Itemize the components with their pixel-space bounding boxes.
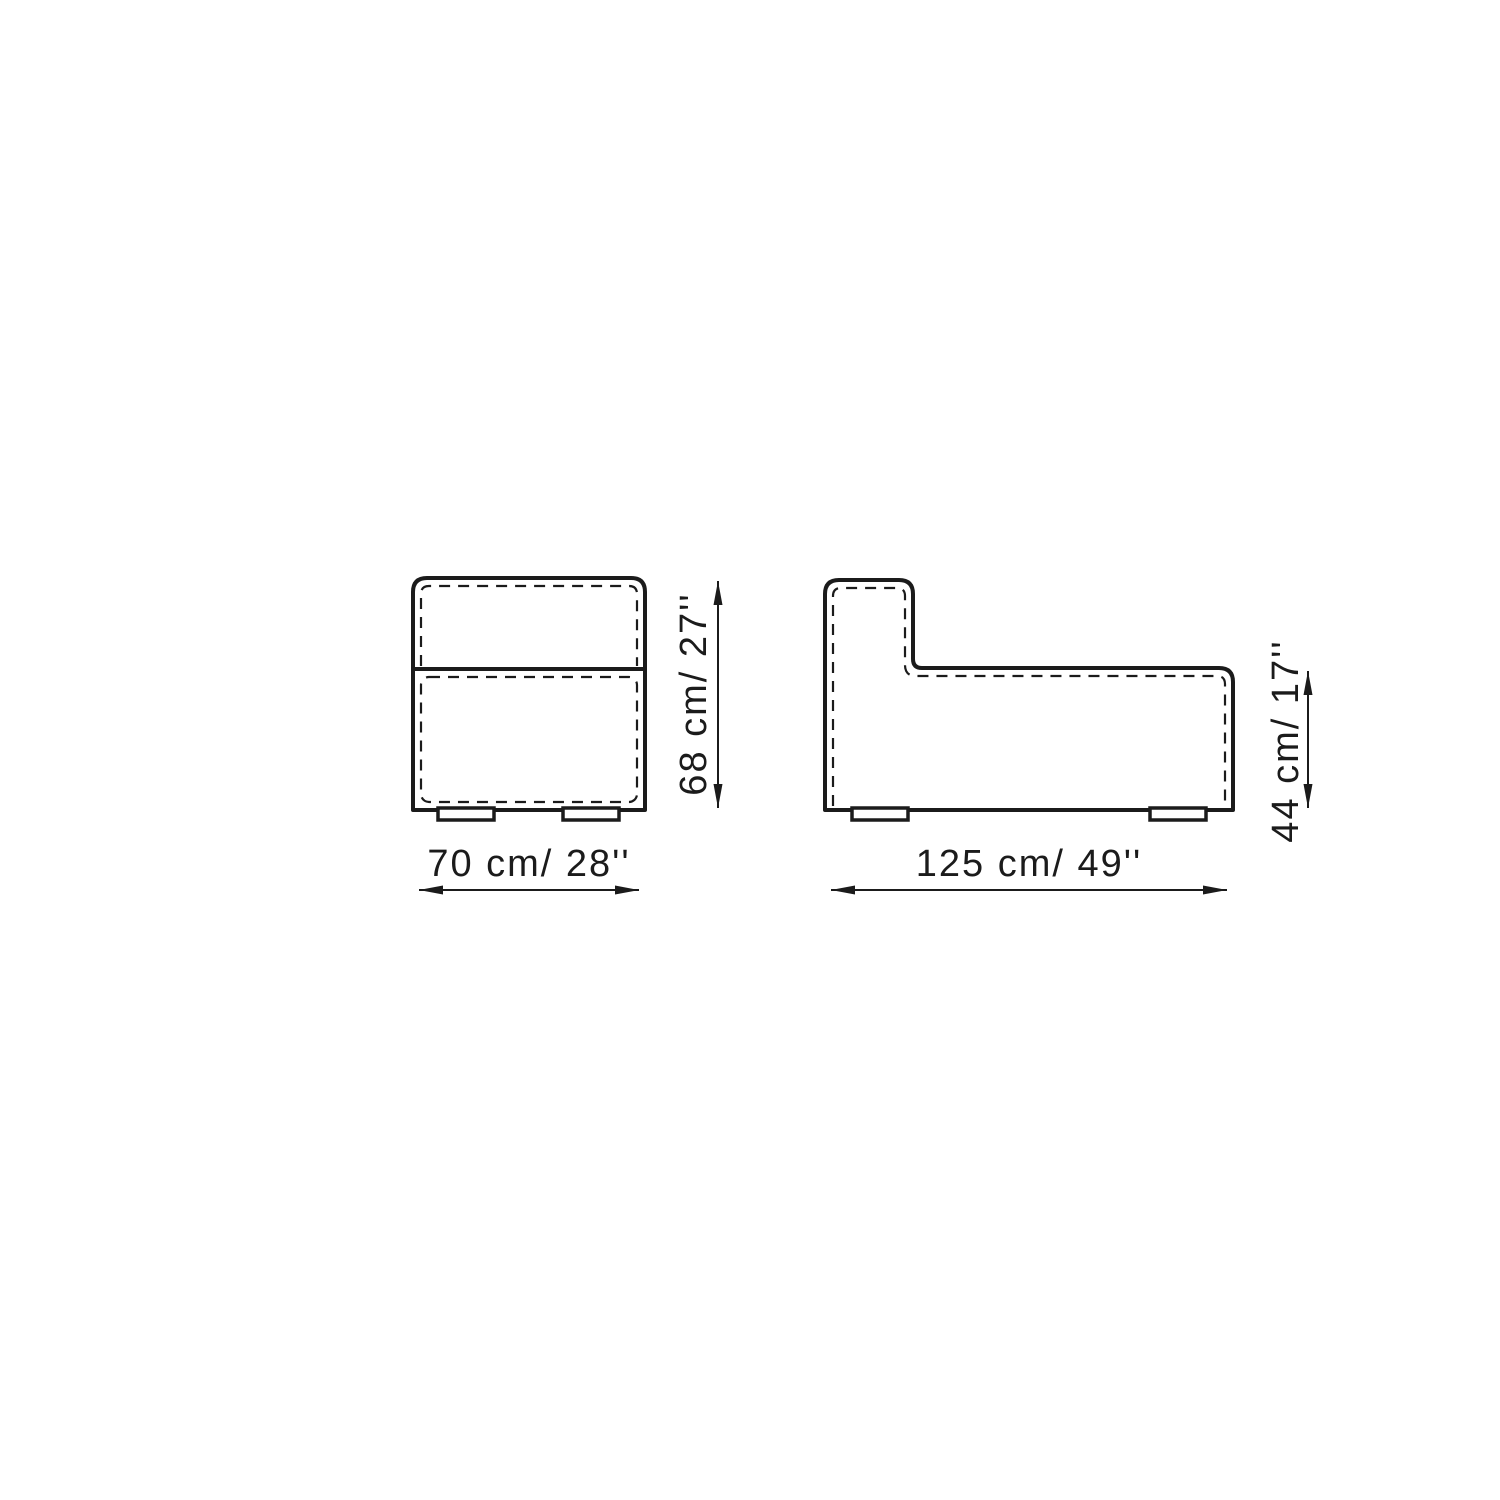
front-left-foot <box>438 808 494 820</box>
front-body-outline <box>413 578 645 810</box>
furniture-dimension-drawing: 70 cm/ 28'' 68 cm/ 27'' 125 cm/ 49'' 44 … <box>0 0 1500 1500</box>
front-width-dimension-label: 70 cm/ 28'' <box>427 843 630 885</box>
side-left-foot <box>852 808 908 820</box>
front-view: 70 cm/ 28'' 68 cm/ 27'' <box>413 578 718 890</box>
drawing-canvas: 70 cm/ 28'' 68 cm/ 27'' 125 cm/ 49'' 44 … <box>0 0 1500 1500</box>
front-height-dimension-label: 68 cm/ 27'' <box>673 592 715 795</box>
side-seat-height-dimension-label: 44 cm/ 17'' <box>1265 639 1307 842</box>
side-view: 125 cm/ 49'' 44 cm/ 17'' <box>825 580 1308 890</box>
side-right-foot <box>1150 808 1206 820</box>
side-body-outline <box>825 580 1233 810</box>
side-depth-dimension-label: 125 cm/ 49'' <box>916 843 1143 885</box>
front-right-foot <box>563 808 619 820</box>
